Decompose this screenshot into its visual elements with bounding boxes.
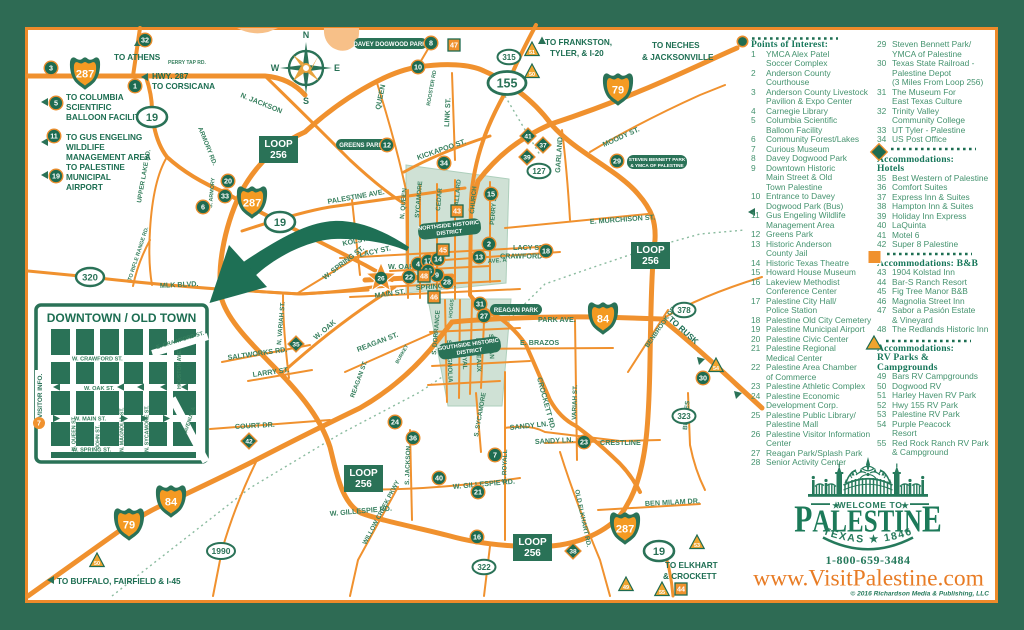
svg-text:24: 24 xyxy=(391,418,399,427)
svg-text:MUNICIPAL: MUNICIPAL xyxy=(66,173,111,182)
svg-text:39: 39 xyxy=(523,154,531,161)
svg-text:VISITOR INFO.: VISITOR INFO. xyxy=(37,374,44,418)
svg-text:SANDY LN.: SANDY LN. xyxy=(535,435,574,446)
svg-text:43: 43 xyxy=(453,207,461,216)
svg-text:ROOSTER RD: ROOSTER RD xyxy=(426,70,438,107)
svg-text:44: 44 xyxy=(677,585,685,594)
svg-text:127: 127 xyxy=(532,167,546,176)
svg-text:287: 287 xyxy=(76,69,94,81)
svg-text:& YMCA OF PALESTINE: & YMCA OF PALESTINE xyxy=(630,163,683,168)
svg-text:256: 256 xyxy=(642,256,659,267)
svg-text:TO BUFFALO, FAIRFIELD & I-45: TO BUFFALO, FAIRFIELD & I-45 xyxy=(57,577,181,586)
svg-text:HOUSTON AVE.: HOUSTON AVE. xyxy=(177,349,183,389)
svg-text:N. SYCAMORE ST.: N. SYCAMORE ST. xyxy=(145,405,151,452)
svg-text:322: 322 xyxy=(477,563,491,572)
svg-text:50: 50 xyxy=(529,72,535,78)
svg-text:7: 7 xyxy=(493,451,497,460)
svg-text:1990: 1990 xyxy=(212,546,231,556)
svg-text:W. MAIN ST.: W. MAIN ST. xyxy=(74,417,106,423)
svg-text:E: E xyxy=(334,63,340,73)
svg-text:TO ATHENS: TO ATHENS xyxy=(114,53,161,62)
svg-text:48: 48 xyxy=(420,272,428,281)
svg-text:N: N xyxy=(303,30,310,40)
svg-text:W: W xyxy=(271,63,280,73)
svg-text:54: 54 xyxy=(713,366,719,372)
svg-text:1: 1 xyxy=(133,82,137,91)
svg-text:79: 79 xyxy=(612,85,624,97)
svg-text:256: 256 xyxy=(524,548,541,559)
svg-text:TO GUS ENGELING: TO GUS ENGELING xyxy=(66,133,142,142)
svg-text:378: 378 xyxy=(677,306,691,315)
svg-text:15: 15 xyxy=(487,190,495,199)
svg-text:41: 41 xyxy=(524,133,532,140)
svg-text:& CROCKETT: & CROCKETT xyxy=(663,572,717,581)
svg-text:LOOP: LOOP xyxy=(636,245,665,256)
svg-text:32: 32 xyxy=(141,36,149,45)
svg-text:LOOP: LOOP xyxy=(349,468,378,479)
svg-text:& JACKSONVILLE: & JACKSONVILLE xyxy=(642,53,714,62)
svg-text:42: 42 xyxy=(245,438,253,445)
svg-text:LINK ST.: LINK ST. xyxy=(442,98,453,128)
svg-text:19: 19 xyxy=(274,217,286,229)
svg-text:29: 29 xyxy=(613,157,621,166)
svg-text:50: 50 xyxy=(94,561,100,567)
svg-text:W. CRAWFORD ST.: W. CRAWFORD ST. xyxy=(72,357,123,363)
svg-text:287: 287 xyxy=(243,198,261,210)
svg-text:323: 323 xyxy=(677,412,691,421)
svg-text:13: 13 xyxy=(475,253,483,262)
svg-text:GARLAND: GARLAND xyxy=(553,137,564,173)
svg-text:TO NECHES: TO NECHES xyxy=(652,41,700,50)
svg-text:AIRPORT: AIRPORT xyxy=(66,183,103,192)
svg-text:MOODY ST.: MOODY ST. xyxy=(601,125,641,149)
svg-text:SCIENTIFIC: SCIENTIFIC xyxy=(66,103,112,112)
svg-text:33: 33 xyxy=(221,192,229,201)
svg-text:49: 49 xyxy=(623,585,629,591)
svg-text:PERRY TAP RD.: PERRY TAP RD. xyxy=(168,60,206,66)
svg-text:HWY. 287: HWY. 287 xyxy=(152,72,189,81)
svg-text:53: 53 xyxy=(694,543,700,549)
svg-text:COURT DR.: COURT DR. xyxy=(235,420,275,431)
svg-text:22: 22 xyxy=(405,273,413,282)
svg-text:6: 6 xyxy=(201,203,205,212)
svg-text:TO RUSK: TO RUSK xyxy=(667,315,700,346)
svg-text:320: 320 xyxy=(82,273,98,284)
svg-text:DOWNTOWN / OLD TOWN: DOWNTOWN / OLD TOWN xyxy=(47,311,197,325)
svg-text:37: 37 xyxy=(539,142,547,149)
svg-text:84: 84 xyxy=(597,314,610,326)
svg-text:155: 155 xyxy=(497,77,518,91)
svg-text:REAGAN PARK: REAGAN PARK xyxy=(494,308,539,314)
svg-text:26: 26 xyxy=(377,275,385,282)
svg-text:W. SPRING ST.: W. SPRING ST. xyxy=(72,448,112,454)
svg-text:256: 256 xyxy=(355,479,372,490)
svg-text:LOOP: LOOP xyxy=(264,139,293,150)
svg-text:VARIAH ST.: VARIAH ST. xyxy=(571,385,579,420)
svg-text:DAVEY DOGWOOD PARK: DAVEY DOGWOOD PARK xyxy=(353,42,427,48)
svg-text:46: 46 xyxy=(430,293,438,302)
svg-text:18: 18 xyxy=(542,247,550,256)
svg-text:20: 20 xyxy=(224,177,232,186)
svg-text:35: 35 xyxy=(292,341,300,348)
svg-text:23: 23 xyxy=(580,438,588,447)
svg-text:TO COLUMBIA: TO COLUMBIA xyxy=(66,93,124,102)
svg-text:79: 79 xyxy=(123,520,135,532)
svg-text:40: 40 xyxy=(435,474,443,483)
svg-text:WILDLIFE: WILDLIFE xyxy=(66,143,105,152)
svg-text:S. JACKSON: S. JACKSON xyxy=(404,445,412,485)
svg-text:84: 84 xyxy=(165,497,178,509)
svg-text:BEN MILAM DR.: BEN MILAM DR. xyxy=(645,496,701,508)
svg-text:10: 10 xyxy=(414,63,422,72)
svg-text:5: 5 xyxy=(54,99,58,108)
svg-text:TYLER, & I-20: TYLER, & I-20 xyxy=(550,49,604,58)
svg-text:TO RIFLE RANGE RD.: TO RIFLE RANGE RD. xyxy=(127,226,150,282)
svg-text:W. OAK ST.: W. OAK ST. xyxy=(84,386,115,392)
svg-text:7: 7 xyxy=(37,421,41,428)
svg-text:2: 2 xyxy=(487,240,491,249)
svg-text:BURKET: BURKET xyxy=(395,344,411,365)
svg-text:ARMORY RD.: ARMORY RD. xyxy=(196,126,218,167)
svg-text:STEVEN BENNETT PARK: STEVEN BENNETT PARK xyxy=(629,157,686,162)
svg-text:E. MURCHISON ST.: E. MURCHISON ST. xyxy=(590,212,656,226)
svg-text:3: 3 xyxy=(49,64,53,73)
svg-text:TO CORSICANA: TO CORSICANA xyxy=(152,82,215,91)
svg-text:28: 28 xyxy=(443,278,451,287)
svg-text:31: 31 xyxy=(476,300,484,309)
svg-text:51: 51 xyxy=(529,50,535,56)
svg-text:N. MAGNOLIA ST.: N. MAGNOLIA ST. xyxy=(120,407,126,452)
svg-text:55: 55 xyxy=(659,590,665,596)
svg-text:BALLOON FACILITY: BALLOON FACILITY xyxy=(66,113,146,122)
svg-text:9: 9 xyxy=(435,271,439,280)
svg-text:TO ELKHART: TO ELKHART xyxy=(665,561,718,570)
svg-text:30: 30 xyxy=(699,374,707,383)
svg-text:38: 38 xyxy=(569,548,577,555)
svg-text:12: 12 xyxy=(383,141,391,150)
svg-text:16: 16 xyxy=(473,533,481,542)
svg-text:PARK AVE.: PARK AVE. xyxy=(538,315,576,324)
svg-text:19: 19 xyxy=(146,112,158,124)
svg-text:19: 19 xyxy=(52,172,60,181)
svg-text:E. BRAZOS: E. BRAZOS xyxy=(520,338,559,347)
svg-text:4: 4 xyxy=(416,260,420,269)
svg-text:27: 27 xyxy=(480,312,488,321)
svg-text:LOOP: LOOP xyxy=(518,537,547,548)
svg-text:287: 287 xyxy=(616,524,634,536)
svg-text:47: 47 xyxy=(450,41,458,50)
svg-text:N. QUEEN ST.: N. QUEEN ST. xyxy=(72,416,78,451)
svg-text:45: 45 xyxy=(439,246,447,255)
svg-text:36: 36 xyxy=(409,434,417,443)
svg-text:MANAGEMENT AREA: MANAGEMENT AREA xyxy=(66,153,151,162)
svg-text:256: 256 xyxy=(270,150,287,161)
svg-text:GREENS PARK: GREENS PARK xyxy=(339,143,383,149)
svg-text:N. JACKSON: N. JACKSON xyxy=(239,91,283,116)
svg-text:TO PALESTINE: TO PALESTINE xyxy=(66,163,125,172)
svg-text:8: 8 xyxy=(429,39,433,48)
svg-text:TO FRANKSTON,: TO FRANKSTON, xyxy=(545,38,612,47)
svg-text:11: 11 xyxy=(50,132,58,141)
svg-text:JOHN ST.: JOHN ST. xyxy=(96,425,102,449)
svg-text:21: 21 xyxy=(474,488,482,497)
svg-text:19: 19 xyxy=(653,546,665,558)
svg-text:CRESTLINE: CRESTLINE xyxy=(600,438,641,447)
svg-text:34: 34 xyxy=(440,159,448,168)
svg-text:S: S xyxy=(303,96,309,106)
svg-text:315: 315 xyxy=(502,53,516,62)
